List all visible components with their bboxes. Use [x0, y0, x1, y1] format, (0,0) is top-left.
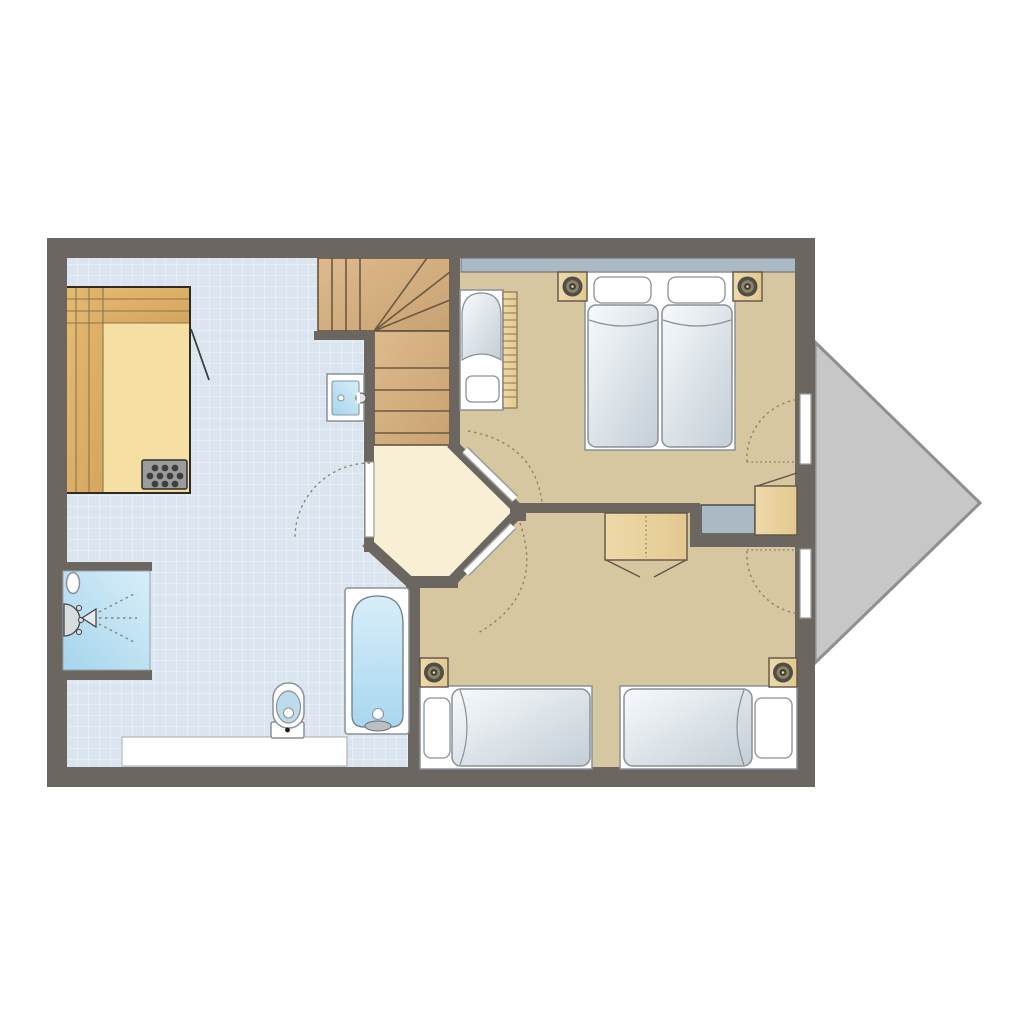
- sink-basin: [332, 381, 359, 415]
- baby-crib: [460, 290, 517, 410]
- toilet-flush: [284, 708, 294, 718]
- floor-plan: [0, 0, 1024, 1024]
- window-strip: [461, 258, 797, 272]
- lamp-icon: [563, 277, 583, 297]
- terrace-door-bottom-leaf: [800, 549, 811, 618]
- sauna-bench-left: [63, 287, 103, 493]
- single-bed-right-pillow: [755, 698, 792, 758]
- bathtub: [345, 588, 409, 734]
- shower-cabin: [63, 571, 150, 670]
- floor-plan-canvas: [0, 0, 1024, 1024]
- wall-shower-top: [63, 562, 152, 571]
- single-bed-left-mattress: [452, 689, 590, 766]
- single-bed-left-pillow: [424, 698, 450, 758]
- single-bed-right: [620, 686, 797, 769]
- vanity-counter: [122, 737, 347, 766]
- bathtub-faucet: [365, 721, 391, 731]
- stair-lower-flight: [374, 331, 450, 445]
- nightstand-bottom-left: [420, 658, 448, 687]
- wall-bottom: [47, 767, 815, 787]
- lamp-icon: [738, 277, 758, 297]
- stair-upper-flight: [318, 258, 450, 331]
- wall-between-bedrooms-stub: [690, 503, 700, 540]
- bathroom-door-leaf: [365, 462, 374, 537]
- crib-pillow: [466, 376, 499, 402]
- double-bed: [585, 272, 735, 450]
- shower-drain: [67, 573, 80, 594]
- wall-shower-bottom: [63, 670, 152, 680]
- crib-mattress: [462, 293, 501, 360]
- sauna-cabin: [63, 287, 209, 493]
- pillow-left: [594, 277, 651, 303]
- wall-stair-bedroom: [450, 258, 460, 447]
- bathtub-drain: [373, 709, 384, 720]
- pillow-right: [668, 277, 725, 303]
- single-bed-left: [420, 686, 592, 769]
- toilet-button: [285, 728, 290, 733]
- crib-rail: [503, 292, 517, 408]
- wall-right: [795, 238, 815, 787]
- wall-left: [47, 238, 67, 787]
- wall-between-bedrooms-lower: [690, 535, 797, 547]
- nightstand-top-left: [558, 272, 587, 301]
- lamp-icon: [424, 663, 444, 683]
- wall-between-bedrooms-upper: [512, 503, 700, 513]
- wall-bathroom-bedroom: [408, 585, 420, 767]
- wall-sink: [327, 374, 366, 421]
- toilet: [271, 683, 304, 738]
- utility-box: [701, 505, 755, 534]
- nightstand-top-right: [733, 272, 762, 301]
- lamp-icon: [773, 663, 793, 683]
- nightstand-bottom-right: [769, 658, 797, 687]
- single-bed-right-mattress: [624, 689, 752, 766]
- sink-drain: [338, 395, 344, 401]
- terrace-door-top-leaf: [800, 394, 811, 464]
- bathtub-basin: [352, 596, 403, 727]
- sink-faucet-spout: [357, 393, 361, 404]
- wall-top: [47, 238, 815, 258]
